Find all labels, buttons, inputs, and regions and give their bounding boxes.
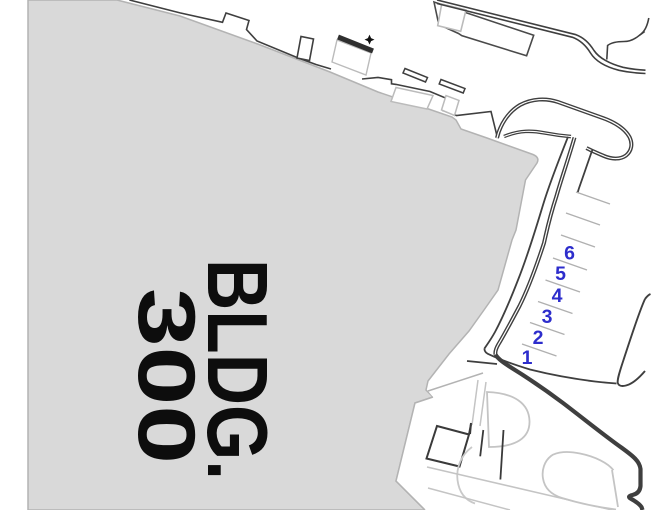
svg-text:4: 4 (552, 285, 563, 307)
svg-text:2: 2 (533, 327, 544, 349)
svg-text:6: 6 (564, 242, 575, 264)
svg-text:5: 5 (555, 263, 566, 285)
svg-text:1: 1 (522, 347, 533, 369)
svg-text:3: 3 (542, 306, 553, 328)
svg-text:300: 300 (121, 288, 211, 464)
